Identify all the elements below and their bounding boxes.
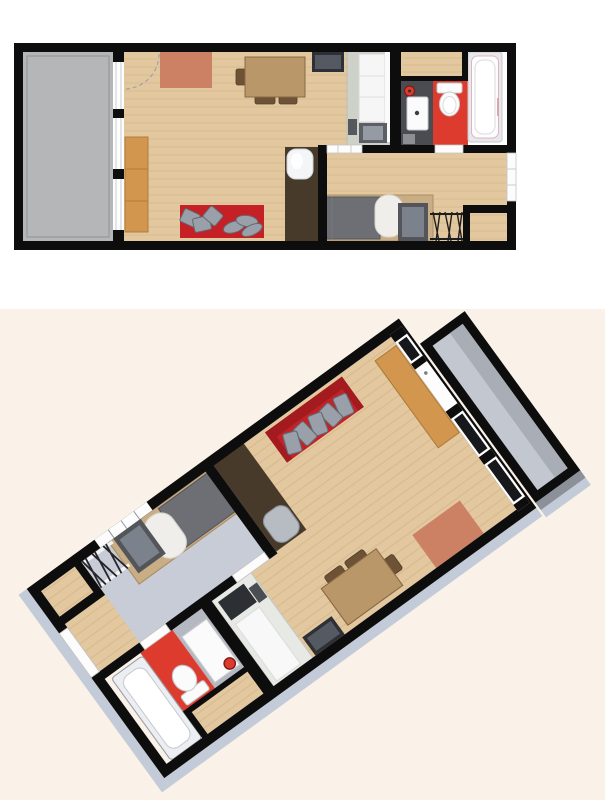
bedroom-sliding-door (327, 145, 362, 153)
tv-screen (315, 55, 341, 69)
kitchenette-2d (347, 48, 390, 147)
floorplan-canvas (0, 0, 605, 800)
bath-hall-floor (401, 52, 462, 80)
tv-unit (312, 52, 344, 72)
lamp-highlight (291, 153, 303, 169)
dining-set (236, 57, 305, 104)
dining-table (245, 57, 305, 97)
bedside-desk-top (402, 207, 424, 237)
kitchen-tall-cabinet (359, 54, 385, 122)
floor-plan-2d (14, 43, 516, 250)
bathtub-basin (475, 60, 495, 134)
balcony-window-wall (113, 52, 124, 241)
toilet-seat (443, 97, 456, 114)
orange-sideboard (125, 137, 148, 232)
floor-plans-image (0, 0, 605, 800)
sideboard-body (125, 137, 148, 232)
faucet (415, 111, 419, 115)
wardrobe-column (285, 147, 318, 245)
window-glass-strip (113, 52, 124, 241)
salmon-rug (160, 52, 212, 88)
balcony-2d (23, 52, 113, 241)
red-sofa (179, 205, 264, 239)
cooktop-surface (363, 126, 383, 140)
kitchen-side-box (348, 119, 357, 135)
balcony-floor (23, 52, 113, 241)
bath-cabinet-box (403, 134, 415, 144)
bed-duvet (322, 197, 380, 239)
entrance-door (507, 153, 516, 201)
red-stool-center (408, 90, 411, 93)
bathroom-door (435, 145, 463, 153)
